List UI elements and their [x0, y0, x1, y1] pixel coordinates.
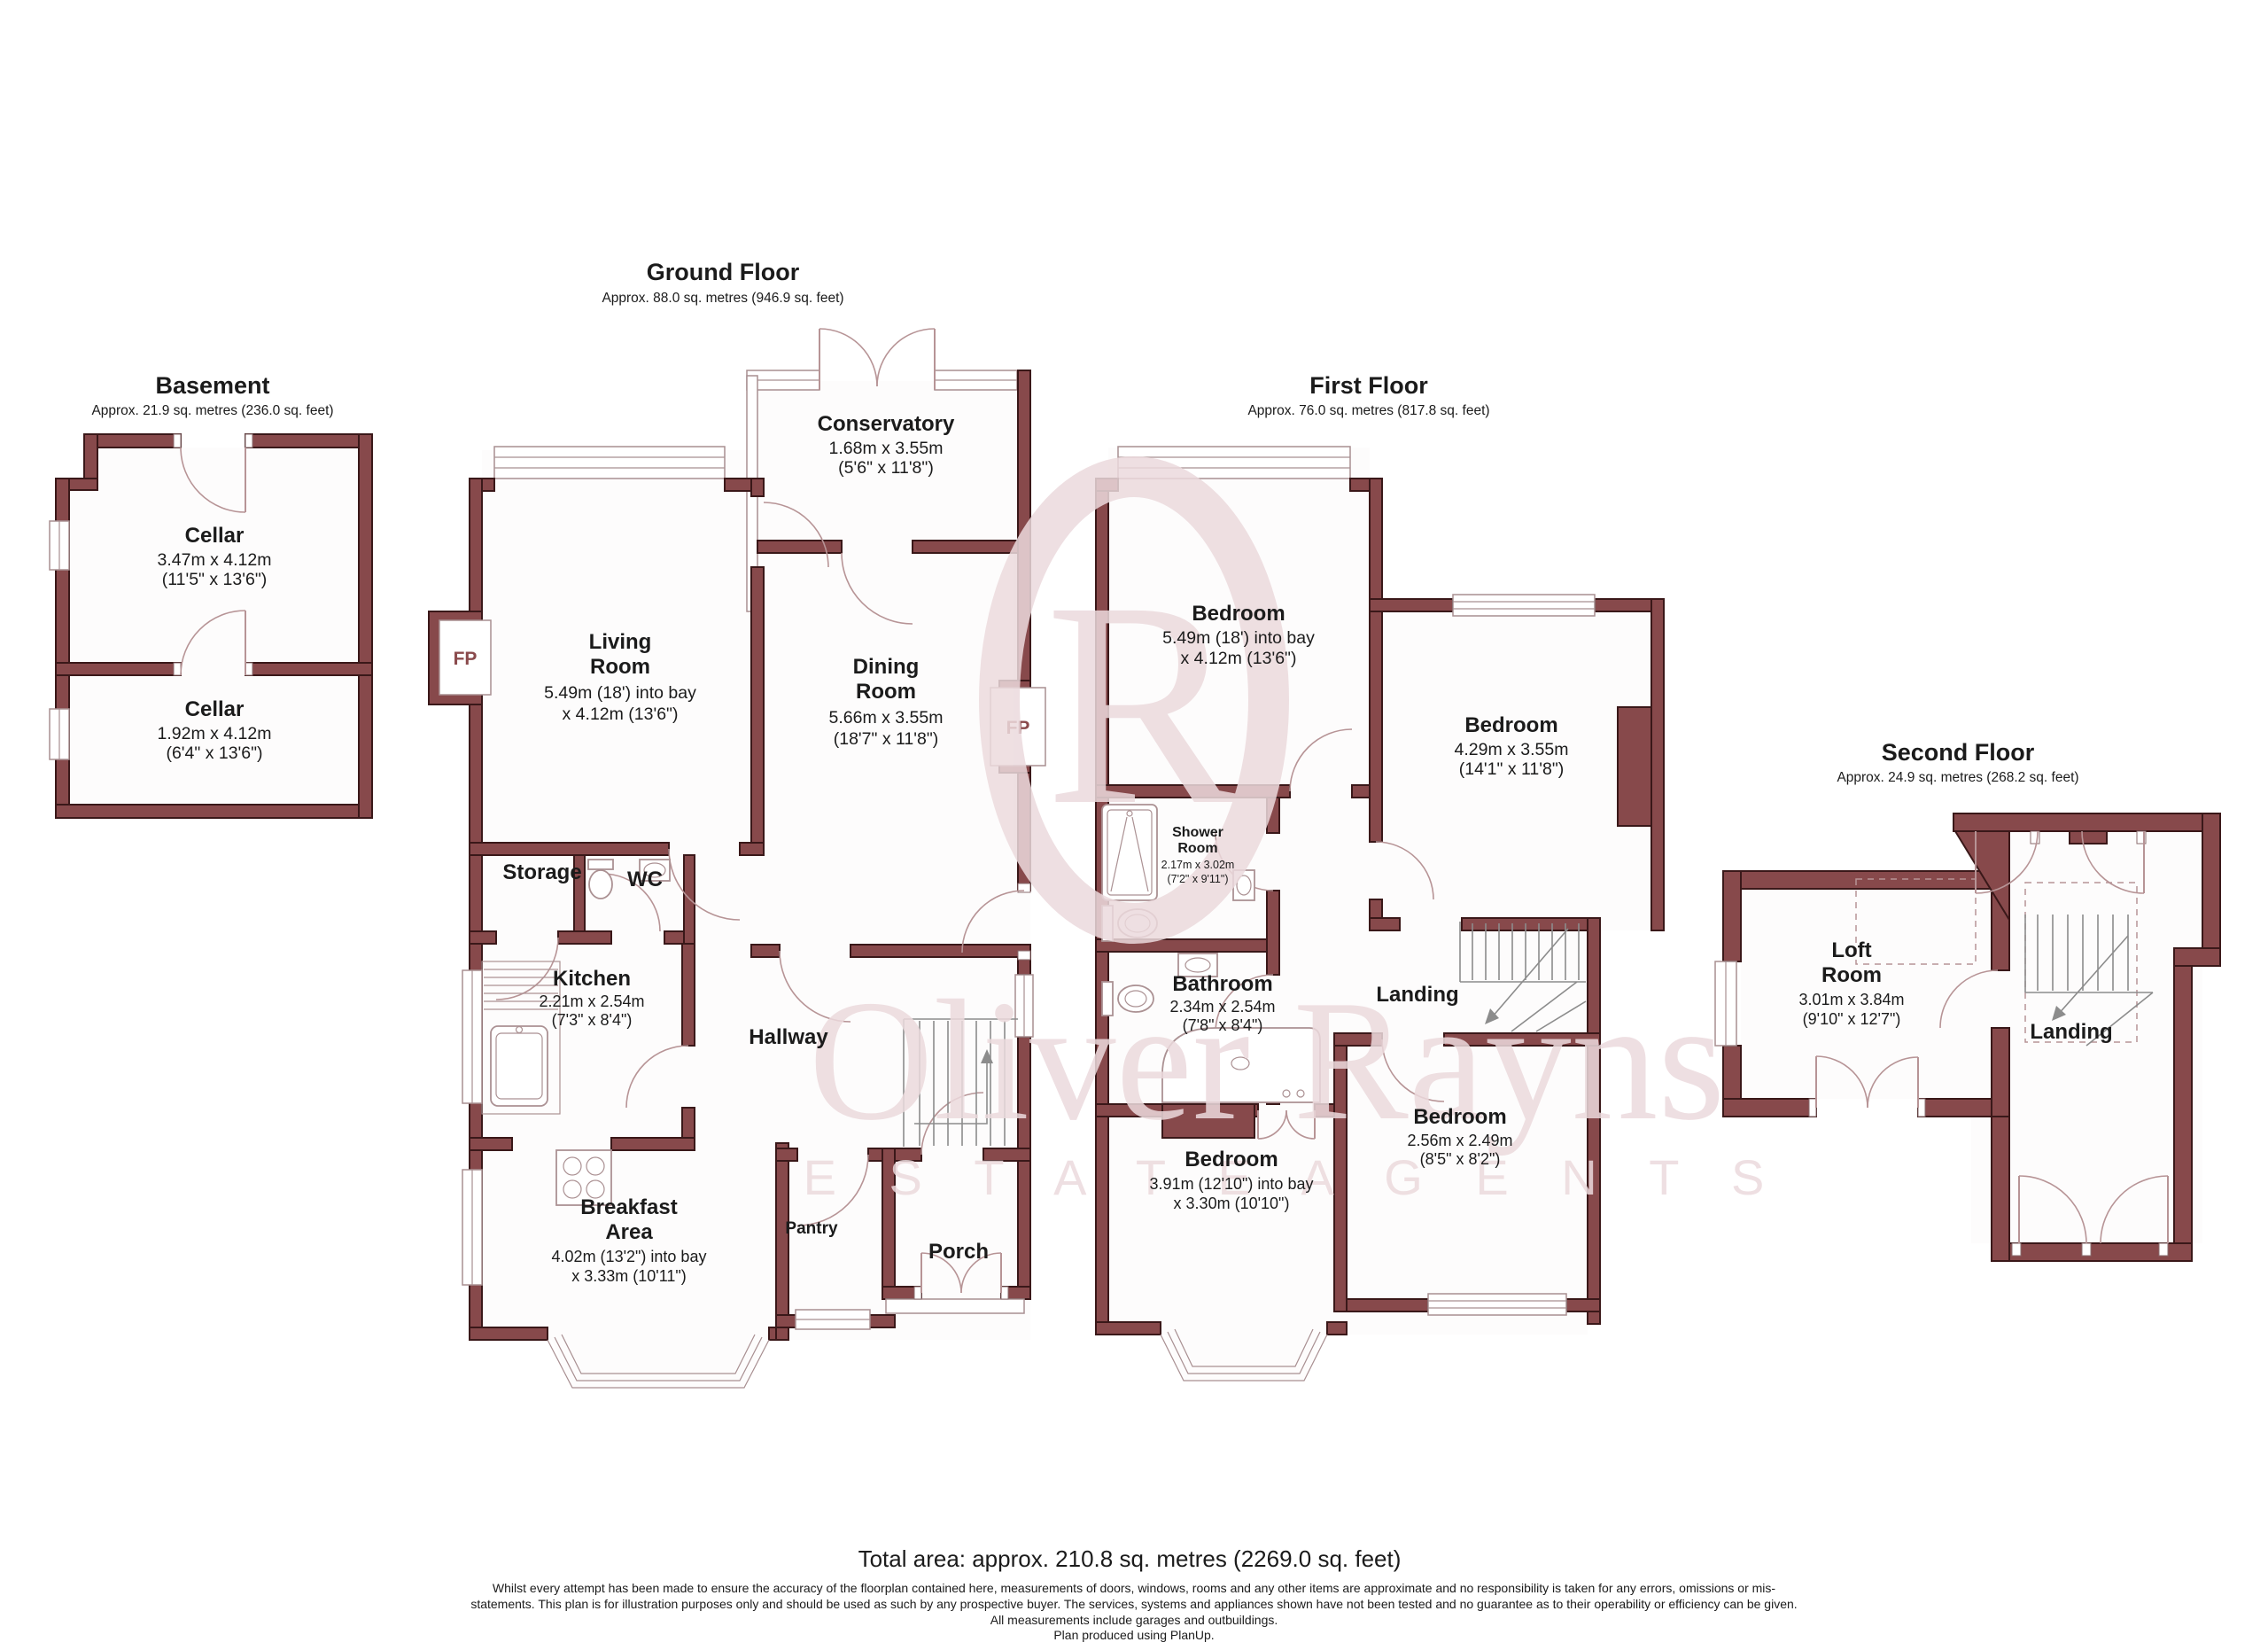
loft-name-2: Room: [1821, 963, 1882, 987]
shower-name-2: Room: [1177, 841, 1217, 856]
loft-name-1: Loft: [1831, 938, 1871, 962]
first-subtitle: Approx. 76.0 sq. metres (817.8 sq. feet): [1247, 403, 1489, 418]
floorplan-page: FP FP: [0, 0, 2268, 1650]
watermark-monogram: R: [1045, 542, 1242, 866]
loft-metric: 3.01m x 3.84m: [1798, 991, 1904, 1008]
shower-imperial: (7'2" x 9'11"): [1167, 873, 1228, 885]
ground-subtitle: Approx. 88.0 sq. metres (946.9 sq. feet): [602, 291, 843, 306]
loft-imperial: (9'10" x 12'7"): [1803, 1010, 1901, 1028]
living-imperial: x 4.12m (13'6"): [563, 704, 679, 724]
cellar-bottom-name: Cellar: [185, 697, 245, 721]
cellar-top-name: Cellar: [185, 524, 245, 548]
bedroom2-chimney: [1618, 707, 1651, 826]
shower-name-1: Shower: [1172, 825, 1223, 840]
floorplan-drawing: FP FP: [0, 0, 2268, 1650]
cellar-top-imperial: (11'5" x 13'6"): [162, 570, 268, 589]
wc-name: WC: [627, 868, 663, 891]
cellar-bottom-imperial: (6'4" x 13'6"): [166, 743, 262, 763]
bathroom-name: Bathroom: [1172, 972, 1272, 996]
bedroom1-imperial: x 4.12m (13'6"): [1181, 649, 1297, 668]
breakfast-metric: 4.02m (13'2") into bay: [552, 1248, 707, 1265]
living-name-1: Living: [589, 630, 652, 654]
bedroom2-imperial: (14'1" x 11'8"): [1459, 759, 1565, 779]
first-title: First Floor: [1309, 372, 1428, 399]
conservatory-name: Conservatory: [818, 412, 955, 436]
bedroom3-metric: 3.91m (12'10") into bay: [1150, 1175, 1314, 1193]
bathroom-imperial: (7'8" x 8'4"): [1183, 1016, 1263, 1034]
breakfast-name-1: Breakfast: [580, 1195, 677, 1219]
ground-floor-plan: FP FP: [429, 329, 1045, 1388]
bathroom-metric: 2.34m x 2.54m: [1169, 998, 1275, 1016]
conservatory-imperial: (5'6" x 11'8"): [838, 458, 934, 478]
bedroom4-metric: 2.56m x 2.49m: [1407, 1132, 1512, 1149]
cellar-bottom-metric: 1.92m x 4.12m: [158, 724, 272, 743]
fp-label-living: FP: [454, 649, 478, 669]
disclaimer-line4: Plan produced using PlanUp.: [1053, 1628, 1214, 1642]
disclaimer-line3: All measurements include garages and out…: [990, 1613, 1278, 1627]
porch-name: Porch: [928, 1240, 989, 1264]
hallway-name: Hallway: [749, 1025, 828, 1049]
second-floor-plan: [1715, 813, 2220, 1261]
conservatory-metric: 1.68m x 3.55m: [829, 439, 944, 458]
cellar-top-metric: 3.47m x 4.12m: [158, 550, 272, 570]
bedroom1-metric: 5.49m (18') into bay: [1162, 628, 1315, 648]
dining-metric: 5.66m x 3.55m: [829, 708, 944, 728]
second-landing-name: Landing: [2030, 1020, 2112, 1044]
breakfast-name-2: Area: [605, 1220, 653, 1244]
living-room-fireplace-icon: FP: [429, 611, 491, 704]
living-room-bay-window-icon: [494, 447, 725, 479]
dining-imperial: (18'7" x 11'8"): [834, 729, 939, 749]
basement-subtitle: Approx. 21.9 sq. metres (236.0 sq. feet): [91, 403, 333, 418]
ground-title: Ground Floor: [647, 259, 800, 285]
bedroom1-name: Bedroom: [1192, 602, 1285, 626]
pantry-name: Pantry: [785, 1219, 838, 1238]
first-landing-name: Landing: [1376, 983, 1458, 1007]
disclaimer-line1: Whilst every attempt has been made to en…: [493, 1581, 1775, 1595]
dining-name-1: Dining: [853, 655, 920, 679]
living-name-2: Room: [590, 655, 650, 679]
storage-name: Storage: [502, 860, 581, 884]
porch-step: [886, 1299, 1024, 1313]
breakfast-imperial: x 3.33m (10'11"): [571, 1267, 687, 1285]
bedroom3-imperial: x 3.30m (10'10"): [1174, 1195, 1290, 1212]
kitchen-metric: 2.21m x 2.54m: [539, 992, 644, 1010]
disclaimer-line2: statements. This plan is for illustratio…: [470, 1597, 1797, 1611]
bedroom3-name: Bedroom: [1184, 1148, 1278, 1171]
bedroom2-name: Bedroom: [1464, 713, 1557, 737]
shower-metric: 2.17m x 3.02m: [1161, 859, 1235, 871]
kitchen-imperial: (7'3" x 8'4"): [552, 1011, 633, 1029]
second-subtitle: Approx. 24.9 sq. metres (268.2 sq. feet): [1837, 770, 2078, 785]
total-area: Total area: approx. 210.8 sq. metres (22…: [858, 1545, 1402, 1572]
basement-title: Basement: [155, 372, 269, 399]
second-title: Second Floor: [1882, 739, 2035, 766]
bedroom4-name: Bedroom: [1413, 1105, 1506, 1129]
living-metric: 5.49m (18') into bay: [544, 683, 696, 703]
dining-name-2: Room: [856, 680, 916, 704]
bedroom4-imperial: (8'5" x 8'2"): [1420, 1150, 1501, 1168]
kitchen-name: Kitchen: [553, 967, 631, 991]
bedroom2-metric: 4.29m x 3.55m: [1455, 740, 1569, 759]
